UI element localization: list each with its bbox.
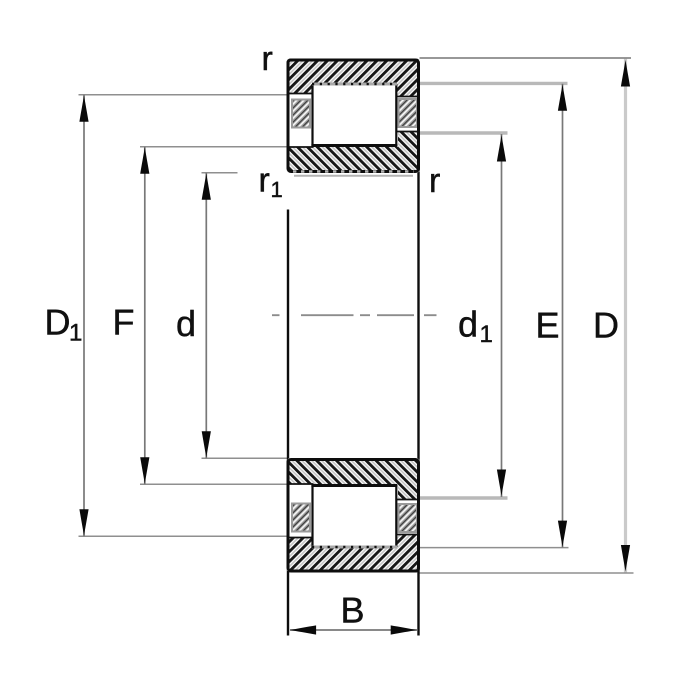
svg-text:d: d — [458, 304, 478, 345]
svg-text:F: F — [113, 302, 135, 343]
svg-text:r: r — [262, 40, 273, 78]
svg-text:d: d — [176, 303, 196, 344]
svg-text:D: D — [45, 302, 71, 343]
svg-text:E: E — [536, 305, 560, 346]
svg-text:B: B — [341, 590, 365, 631]
svg-text:r: r — [429, 162, 440, 200]
svg-text:D: D — [593, 305, 619, 346]
svg-text:r: r — [259, 162, 270, 200]
svg-text:1: 1 — [271, 177, 283, 202]
svg-text:1: 1 — [69, 320, 82, 347]
svg-text:1: 1 — [480, 321, 493, 348]
